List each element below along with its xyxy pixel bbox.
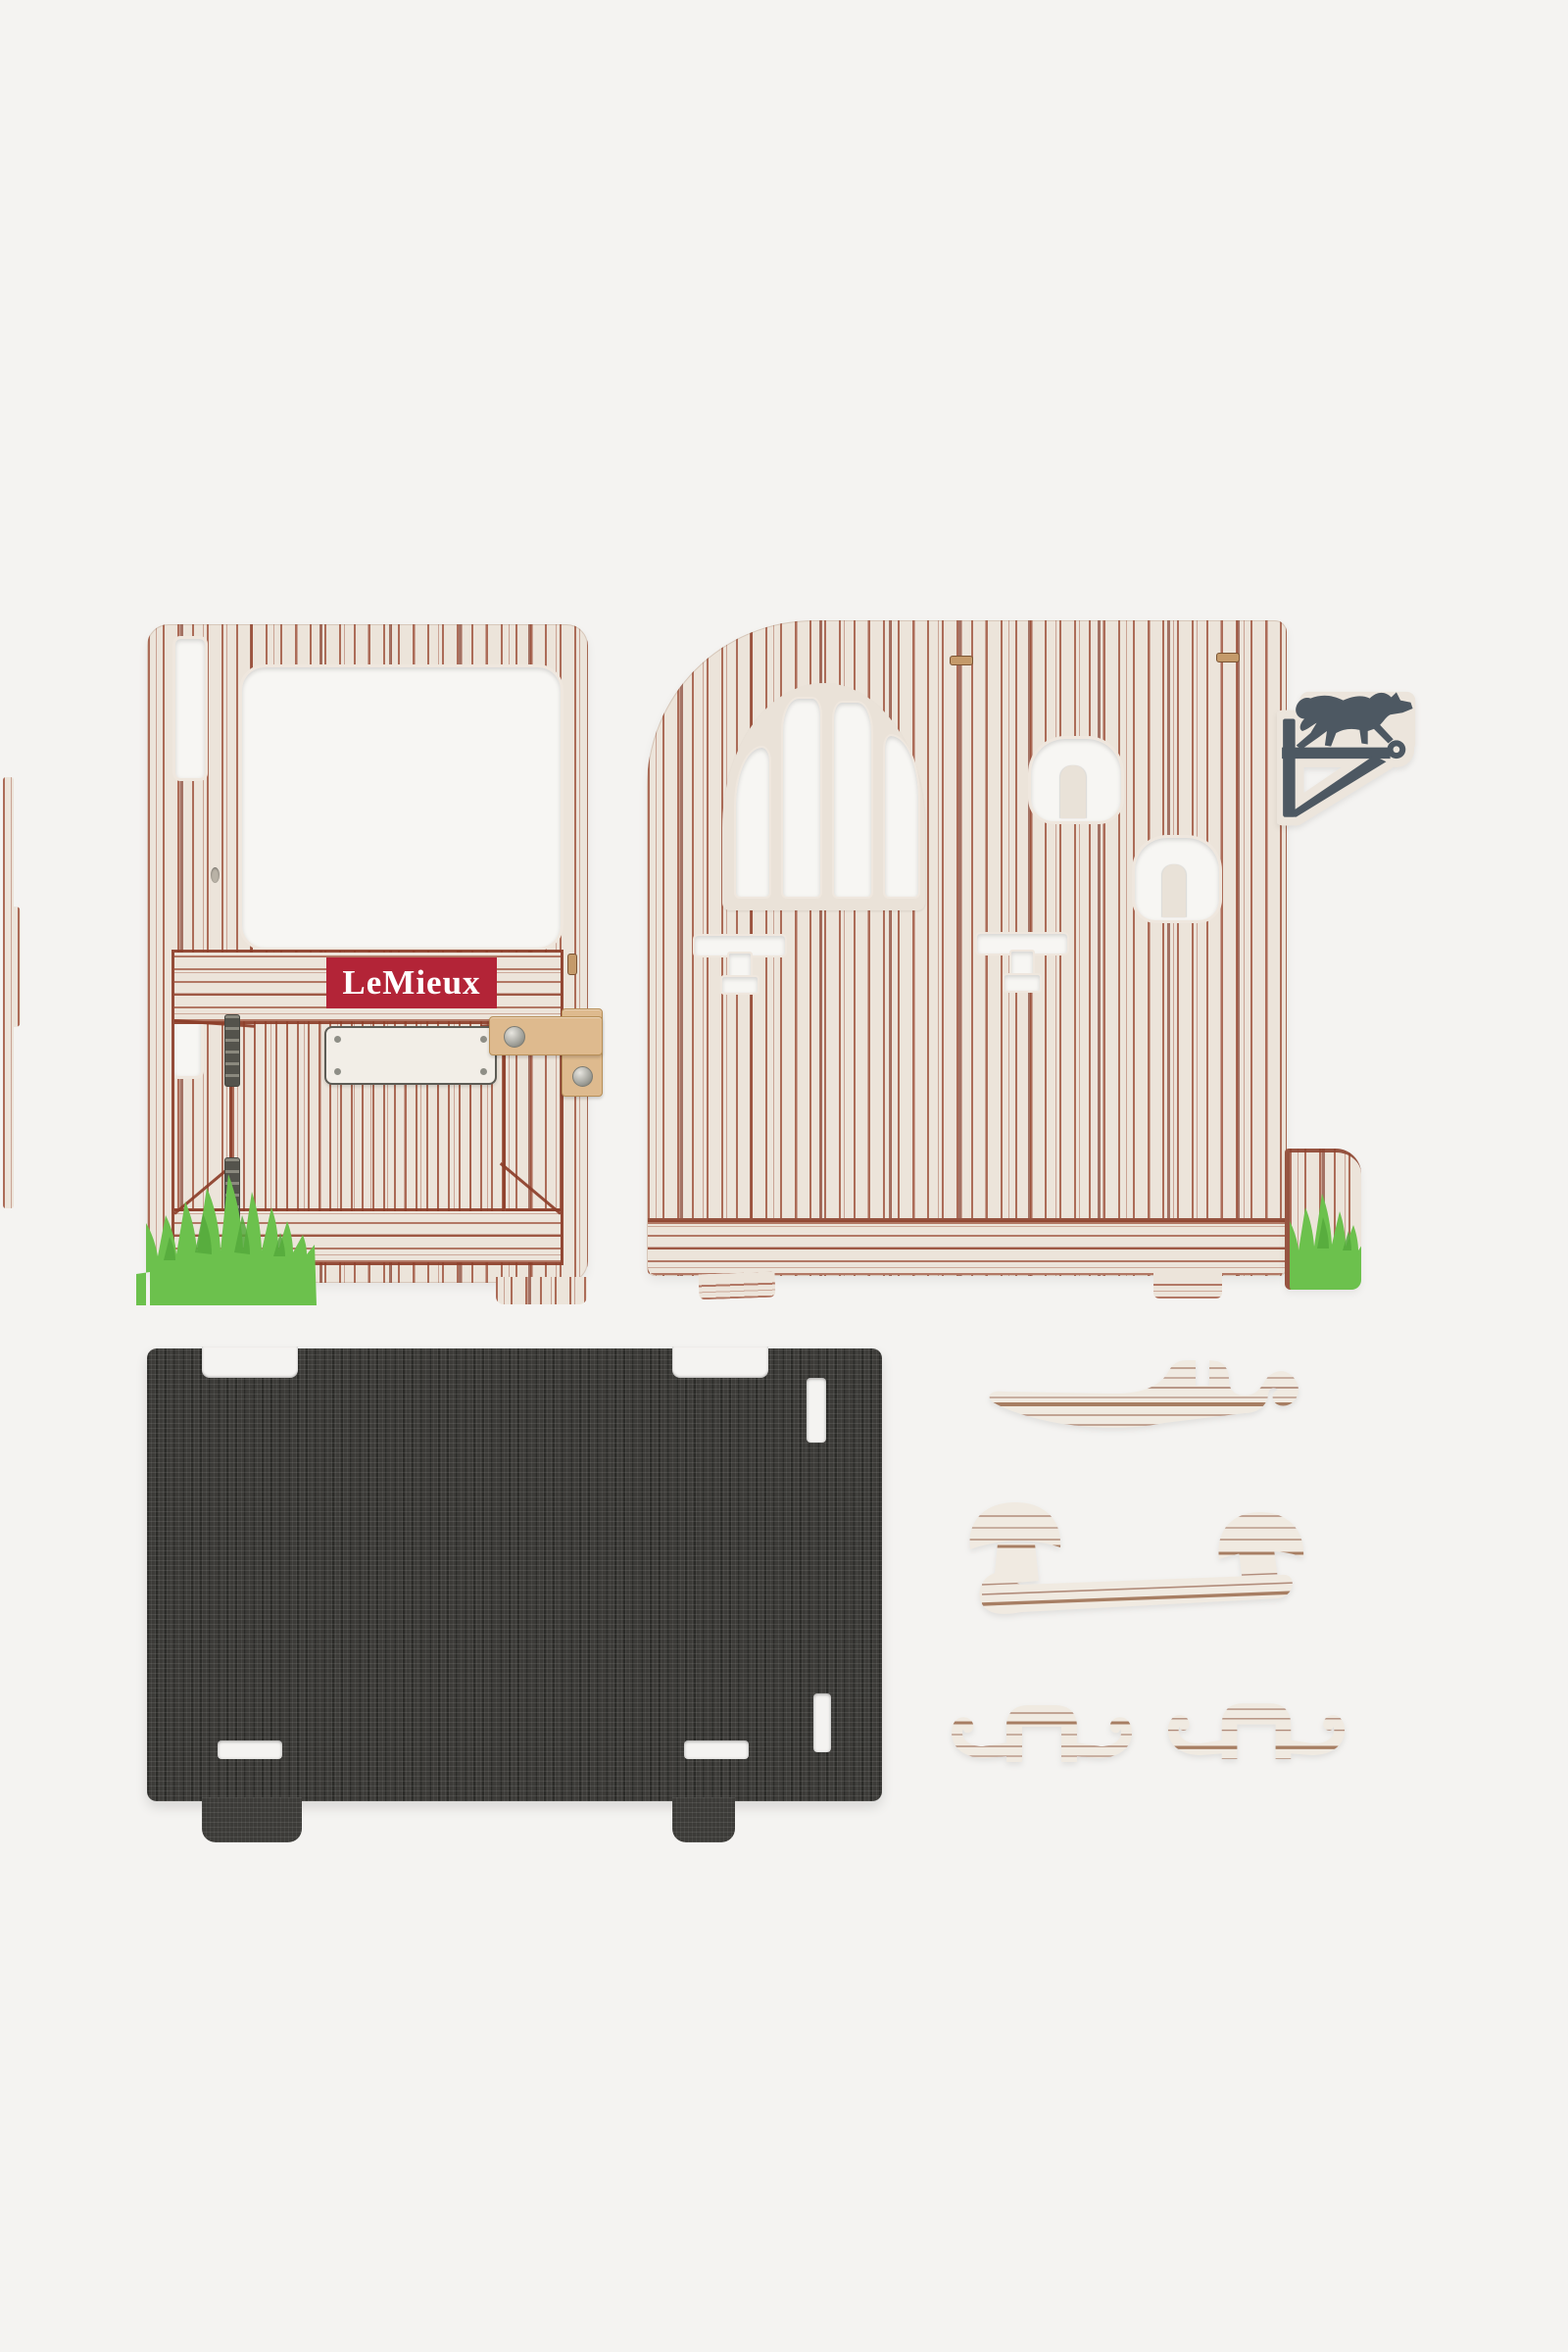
horseshoe-slot-cutout bbox=[1028, 736, 1118, 818]
horse-weathervane-icon bbox=[1277, 684, 1426, 827]
panel-foot bbox=[1153, 1273, 1222, 1298]
brand-label-text: LeMieux bbox=[342, 963, 480, 1003]
grass-icon bbox=[136, 1154, 336, 1307]
panel-foot bbox=[699, 1272, 776, 1300]
base-mat bbox=[147, 1348, 882, 1801]
latch-screw bbox=[572, 1066, 593, 1087]
mat-bottom-slot bbox=[218, 1740, 282, 1759]
latch-bar bbox=[489, 1016, 603, 1055]
t-slot-cutout bbox=[975, 932, 1065, 995]
plate-screw-dot bbox=[480, 1068, 487, 1075]
stable-door-panel: LeMieux bbox=[147, 624, 588, 1283]
mat-foot-tab bbox=[202, 1797, 302, 1842]
mat-right-slot bbox=[813, 1693, 831, 1752]
saddle-rack bbox=[978, 1352, 1316, 1443]
t-slot-cutout bbox=[693, 934, 783, 997]
plate-screw-dot bbox=[334, 1036, 341, 1043]
window-slot bbox=[734, 746, 771, 899]
door-pin-hole bbox=[211, 867, 220, 883]
name-plate bbox=[324, 1026, 497, 1085]
arched-window bbox=[722, 683, 925, 910]
grass-icon bbox=[1290, 1182, 1361, 1290]
brand-label: LeMieux bbox=[326, 957, 497, 1008]
mat-top-notch bbox=[672, 1347, 768, 1378]
latch-screw bbox=[504, 1026, 525, 1048]
window-slot bbox=[781, 697, 822, 899]
product-photo-stage: LeMieux bbox=[0, 0, 1568, 2352]
double-hook bbox=[946, 1693, 1138, 1778]
mitre-line-br bbox=[500, 1162, 562, 1215]
door-window-cutout bbox=[239, 664, 563, 951]
horseshoe-tab bbox=[1060, 765, 1086, 818]
side-panel-extension bbox=[1285, 1149, 1361, 1290]
screw-slot bbox=[1216, 653, 1240, 662]
window-slot bbox=[832, 701, 873, 899]
mat-bottom-slot bbox=[684, 1740, 749, 1759]
t-slot-foot bbox=[1003, 973, 1042, 993]
t-slot-foot bbox=[720, 975, 759, 995]
bottom-plank-strip bbox=[648, 1218, 1286, 1275]
mat-right-slot bbox=[807, 1378, 826, 1443]
horseshoe-tab bbox=[1162, 864, 1186, 917]
mat-foot-tab bbox=[672, 1797, 735, 1842]
screw-slot bbox=[567, 954, 577, 975]
blanket-rail bbox=[962, 1475, 1315, 1617]
hinge-print-upper bbox=[224, 1014, 240, 1087]
door-foot bbox=[496, 1277, 587, 1304]
plate-screw-dot bbox=[334, 1068, 341, 1075]
stable-side-panel bbox=[647, 620, 1287, 1276]
window-slot bbox=[883, 734, 920, 899]
horseshoe-slot-cutout bbox=[1132, 835, 1216, 917]
edge-strip-bump bbox=[3, 906, 21, 1027]
double-hook bbox=[1162, 1691, 1350, 1775]
screw-slot bbox=[950, 656, 973, 665]
door-top-slot-cutout bbox=[172, 636, 208, 781]
plate-screw-dot bbox=[480, 1036, 487, 1043]
mat-top-notch bbox=[202, 1347, 298, 1378]
